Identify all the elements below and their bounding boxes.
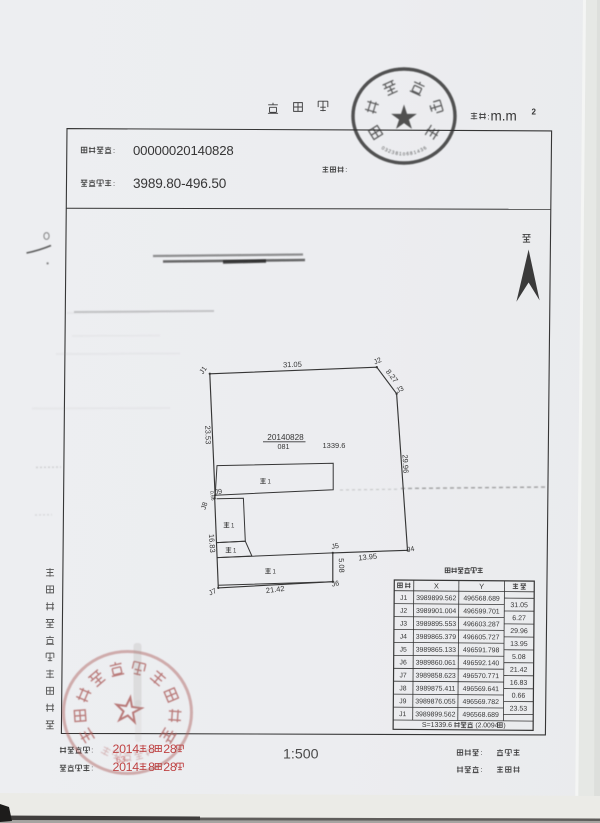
svg-text:496569.641: 496569.641	[463, 686, 500, 693]
svg-text:16.83: 16.83	[510, 680, 528, 687]
svg-text::: :	[480, 767, 482, 774]
svg-text:3989876.055: 3989876.055	[415, 698, 455, 705]
svg-text:6.27: 6.27	[512, 615, 526, 622]
svg-text:21.42: 21.42	[510, 667, 528, 674]
svg-text:J2: J2	[400, 608, 407, 615]
svg-text:23.53: 23.53	[203, 425, 213, 444]
svg-text::: :	[91, 748, 93, 755]
svg-text:496605.727: 496605.727	[463, 634, 500, 641]
svg-text:496570.771: 496570.771	[463, 673, 500, 680]
svg-text::: :	[345, 167, 347, 174]
svg-text:8.27: 8.27	[384, 367, 400, 384]
svg-text:0.66: 0.66	[208, 491, 216, 502]
svg-text:496599.701: 496599.701	[463, 608, 500, 615]
svg-text:X: X	[434, 582, 439, 591]
svg-text:496592.140: 496592.140	[463, 660, 500, 667]
svg-text:31.05: 31.05	[510, 602, 528, 609]
svg-text:20140828: 20140828	[267, 433, 304, 442]
svg-text::: :	[91, 766, 93, 773]
svg-text:3989899.562: 3989899.562	[415, 711, 455, 718]
svg-text:496569.782: 496569.782	[463, 699, 500, 706]
svg-text:3989858.623: 3989858.623	[415, 672, 455, 679]
svg-text:3989.80-496.50: 3989.80-496.50	[133, 176, 227, 191]
svg-text:J1: J1	[400, 595, 407, 602]
svg-text:00000020140828: 00000020140828	[133, 143, 234, 158]
svg-text:0.66: 0.66	[512, 693, 526, 700]
svg-text:1: 1	[268, 480, 272, 486]
svg-text::: :	[480, 750, 482, 757]
svg-text:496568.689: 496568.689	[463, 595, 500, 602]
svg-text:Y: Y	[479, 582, 484, 591]
svg-text:J9: J9	[399, 698, 406, 705]
svg-text:J7: J7	[399, 672, 406, 679]
svg-text:29.96: 29.96	[401, 454, 411, 473]
svg-text:3989865.379: 3989865.379	[416, 634, 456, 641]
svg-text:m.m: m.m	[491, 109, 517, 124]
svg-text:5.08: 5.08	[337, 558, 347, 573]
svg-text:63.: 63.	[115, 753, 128, 765]
svg-text:496603.287: 496603.287	[463, 621, 500, 628]
svg-text:1339.6: 1339.6	[323, 441, 346, 450]
svg-text:31.05: 31.05	[283, 360, 302, 370]
svg-text:3989875.411: 3989875.411	[416, 685, 456, 692]
svg-text:J8: J8	[199, 501, 210, 511]
svg-text:J3: J3	[400, 621, 407, 628]
svg-text:S=1339.6: S=1339.6	[422, 722, 452, 729]
svg-text:J5: J5	[400, 647, 407, 654]
svg-text:(2.0094: (2.0094	[475, 722, 498, 729]
svg-text:1: 1	[231, 524, 235, 530]
svg-text::: :	[488, 113, 490, 122]
svg-text:J8: J8	[399, 685, 406, 692]
svg-text:16.83: 16.83	[207, 534, 217, 553]
svg-text:496591.798: 496591.798	[463, 647, 500, 654]
svg-text:J7: J7	[207, 586, 218, 597]
svg-text:3989901.004: 3989901.004	[416, 608, 456, 615]
svg-text:J5: J5	[331, 541, 340, 551]
svg-text:J6: J6	[400, 659, 407, 666]
svg-text:1:500: 1:500	[283, 747, 319, 763]
svg-text:1: 1	[273, 570, 277, 576]
svg-text:3989865.133: 3989865.133	[416, 647, 456, 654]
svg-text::: :	[113, 179, 115, 188]
svg-text:J2: J2	[372, 355, 383, 366]
svg-text:13.95: 13.95	[510, 641, 528, 648]
svg-text:): )	[503, 722, 505, 729]
svg-text:29.96: 29.96	[510, 628, 528, 635]
svg-text:J1: J1	[197, 364, 209, 375]
svg-text:496568.689: 496568.689	[462, 712, 499, 719]
svg-text:J4: J4	[406, 544, 415, 554]
svg-text:081: 081	[278, 442, 290, 451]
svg-text:2: 2	[532, 108, 537, 117]
svg-text:3989899.562: 3989899.562	[416, 595, 456, 602]
svg-text::: :	[113, 146, 115, 155]
svg-text:1: 1	[233, 549, 237, 555]
svg-text:J6: J6	[331, 578, 340, 588]
svg-text:3989895.553: 3989895.553	[416, 621, 456, 628]
svg-text:5.08: 5.08	[512, 654, 526, 661]
svg-text:13.95: 13.95	[358, 552, 378, 563]
svg-text:21.42: 21.42	[265, 584, 285, 595]
svg-text:3989860.061: 3989860.061	[416, 660, 456, 667]
svg-text:J1: J1	[399, 711, 406, 718]
svg-text:J4: J4	[400, 634, 407, 641]
svg-text:23.53: 23.53	[510, 706, 528, 713]
